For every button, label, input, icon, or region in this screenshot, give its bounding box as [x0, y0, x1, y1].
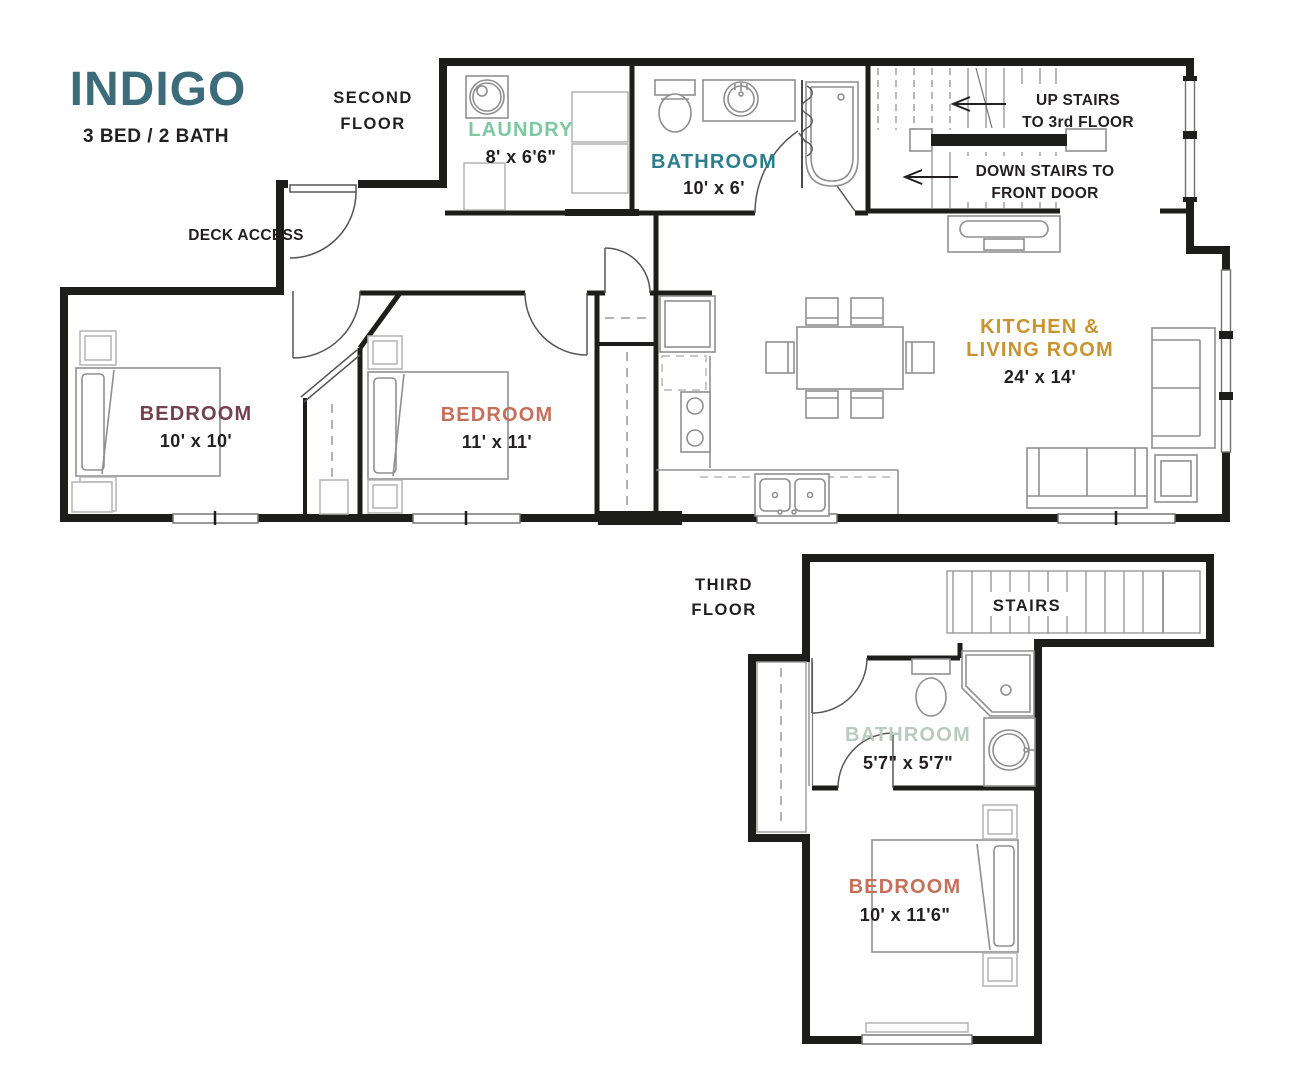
kitchen-living-label-line2: LIVING ROOM [966, 339, 1114, 361]
down-stairs-note-line1: DOWN STAIRS TO [976, 163, 1115, 180]
down-stairs-note-line2: FRONT DOOR [991, 185, 1098, 202]
bathroom-dims: 10' x 6' [683, 178, 745, 198]
dining-chair [806, 391, 838, 418]
upper-cabinets [662, 356, 706, 390]
staircase-third-floor [947, 571, 1200, 633]
third-floor-label-line2: FLOOR [691, 601, 756, 619]
refrigerator [660, 296, 715, 352]
bedroom-left-dims: 10' x 10' [160, 431, 232, 451]
window-sill [866, 1023, 968, 1032]
storage-shelf [572, 144, 628, 193]
sink-vanity [984, 718, 1035, 786]
dining-chair [906, 342, 934, 373]
second-floor-label-line2: FLOOR [340, 115, 405, 133]
floor-plan-page: SECOND FLOOR DECK ACCESS LAUNDRY 8' x 6'… [0, 0, 1307, 1080]
storage-shelf [572, 92, 628, 142]
up-stairs-note-line1: UP STAIRS [1036, 92, 1120, 109]
third-floor-bedroom-label: BEDROOM [849, 876, 962, 898]
plan-subtitle: 3 BED / 2 BATH [83, 126, 229, 147]
toilet [912, 659, 950, 716]
laundry-mat [565, 209, 639, 216]
stair-railing [910, 129, 1106, 151]
stairs-label: STAIRS [993, 597, 1061, 615]
bedroom-middle-label: BEDROOM [441, 404, 554, 426]
dining-chair [806, 298, 838, 325]
kitchen-sink [755, 474, 829, 516]
plan-title: INDIGO [70, 63, 247, 116]
kitchen-living-dims: 24' x 14' [1004, 367, 1076, 387]
kitchen-living-label-line1: KITCHEN & [980, 316, 1100, 338]
second-floor-label-line1: SECOND [333, 89, 413, 107]
laundry-label: LAUNDRY [468, 119, 573, 141]
closet-shelf [320, 480, 348, 514]
stove [681, 392, 710, 452]
up-arrow-icon [953, 97, 1006, 111]
laundry-dims: 8' x 6'6" [486, 147, 557, 167]
hall-door [812, 658, 867, 713]
dresser [72, 482, 112, 512]
bedroom-middle-dims: 11' x 11' [462, 432, 532, 452]
console-table [948, 216, 1060, 252]
nightstand [368, 336, 402, 369]
laundry-cabinet [464, 163, 505, 210]
third-floor-exterior-wall [752, 558, 1210, 1040]
third-floor-bathroom-label: BATHROOM [845, 724, 971, 746]
bedroom-middle-door [525, 293, 587, 355]
hall-door [605, 248, 650, 293]
entry-threshold [598, 511, 682, 525]
third-floor-bathroom-dims: 5'7" x 5'7" [863, 753, 953, 773]
third-floor-plan: THIRD FLOOR STAIRS BATHROOM 5'7" x 5'7" … [691, 558, 1210, 1048]
side-table [1155, 455, 1197, 502]
third-floor-window [862, 1023, 972, 1048]
deck-access-label: DECK ACCESS [188, 227, 304, 244]
up-stairs-note-line2: TO 3rd FLOOR [1022, 114, 1134, 131]
bedroom-left-door [293, 291, 360, 358]
nightstand [983, 805, 1017, 839]
dining-table [797, 327, 903, 389]
third-floor-bedroom-dims: 10' x 11'6" [860, 905, 951, 925]
window [862, 1035, 972, 1044]
dining-set [766, 298, 934, 418]
bathroom-label: BATHROOM [651, 151, 777, 173]
bedroom-left-label: BEDROOM [140, 403, 253, 425]
nightstand [368, 480, 402, 513]
laundry-fixtures [464, 76, 628, 210]
nightstand [983, 953, 1017, 986]
dining-chair [766, 342, 794, 373]
hall-closet [757, 662, 813, 832]
bathtub [802, 82, 858, 186]
title-block: INDIGO 3 BED / 2 BATH [70, 63, 247, 147]
floor-plan-image: SECOND FLOOR DECK ACCESS LAUNDRY 8' x 6'… [0, 0, 1307, 1080]
corner-shower [962, 651, 1034, 716]
dining-chair [851, 391, 883, 418]
toilet [655, 80, 695, 132]
second-floor-plan: SECOND FLOOR DECK ACCESS LAUNDRY 8' x 6'… [64, 62, 1234, 526]
window [1222, 270, 1231, 452]
washer [466, 76, 508, 118]
nightstand [80, 331, 116, 365]
dining-chair [851, 298, 883, 325]
third-floor-label-line1: THIRD [695, 576, 753, 594]
deck-access-door [290, 185, 356, 258]
sink-vanity [703, 80, 795, 121]
